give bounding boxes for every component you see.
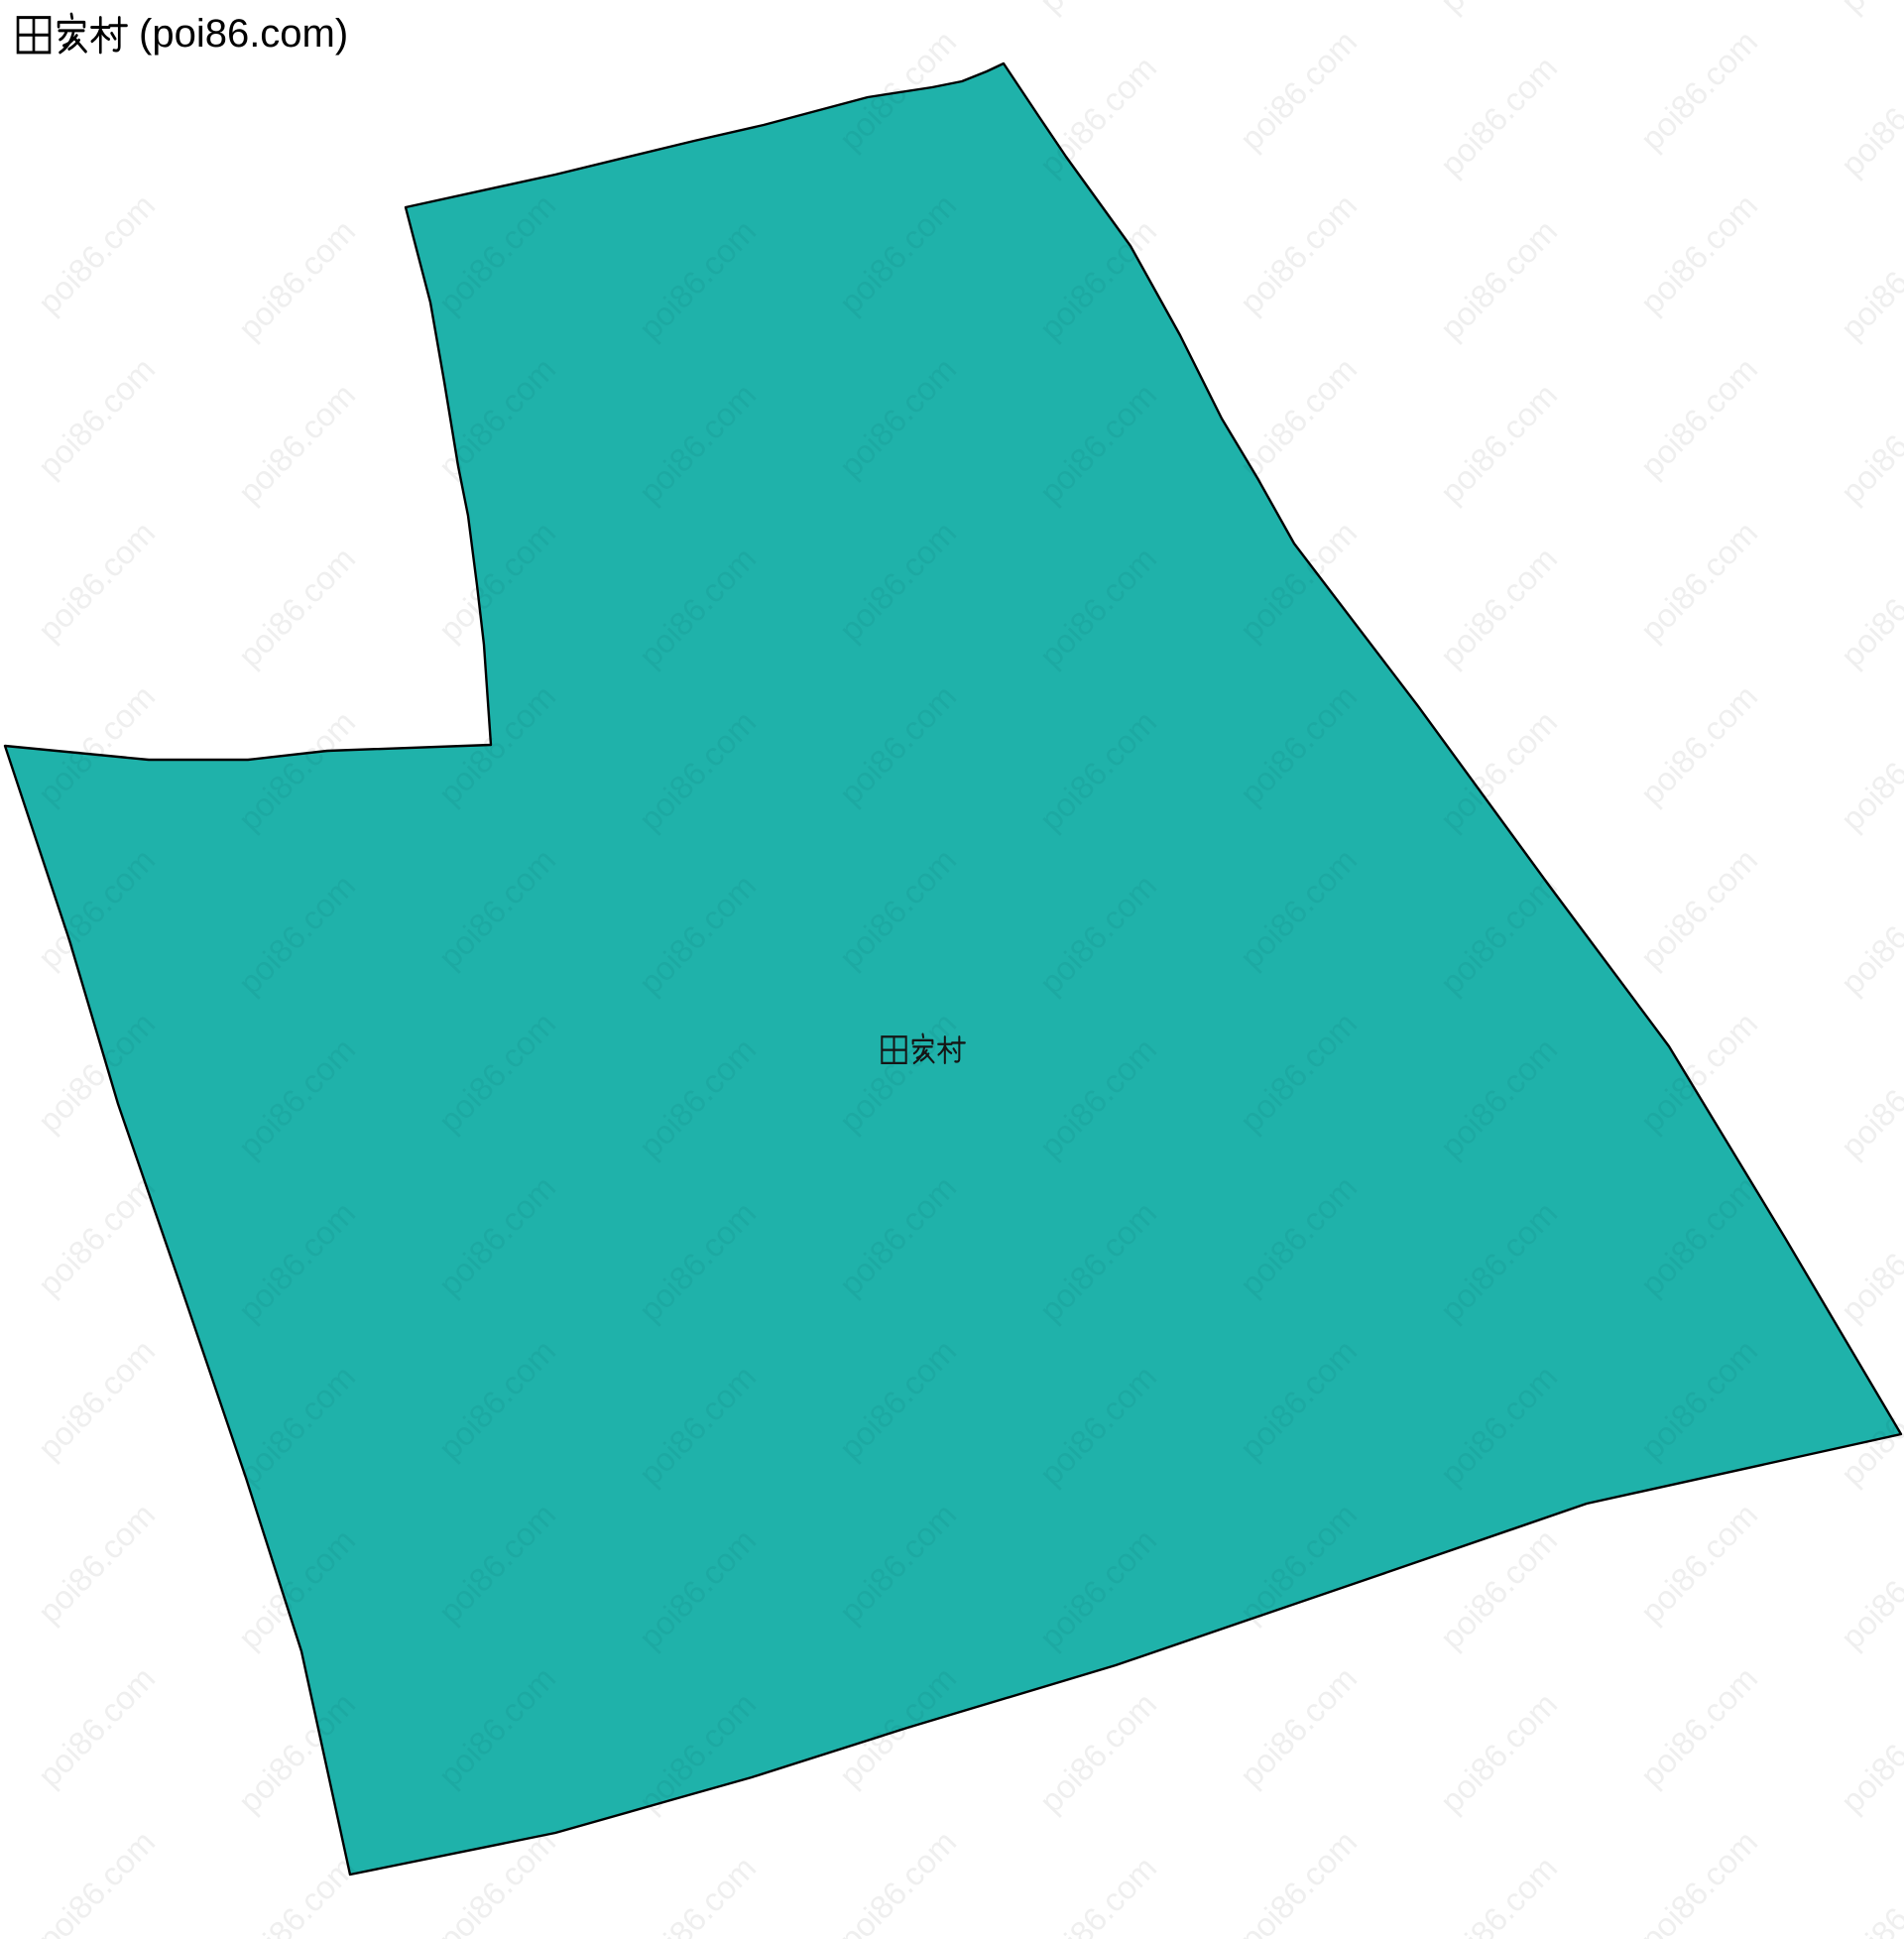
- svg-text:(poi86.com): (poi86.com): [139, 12, 348, 56]
